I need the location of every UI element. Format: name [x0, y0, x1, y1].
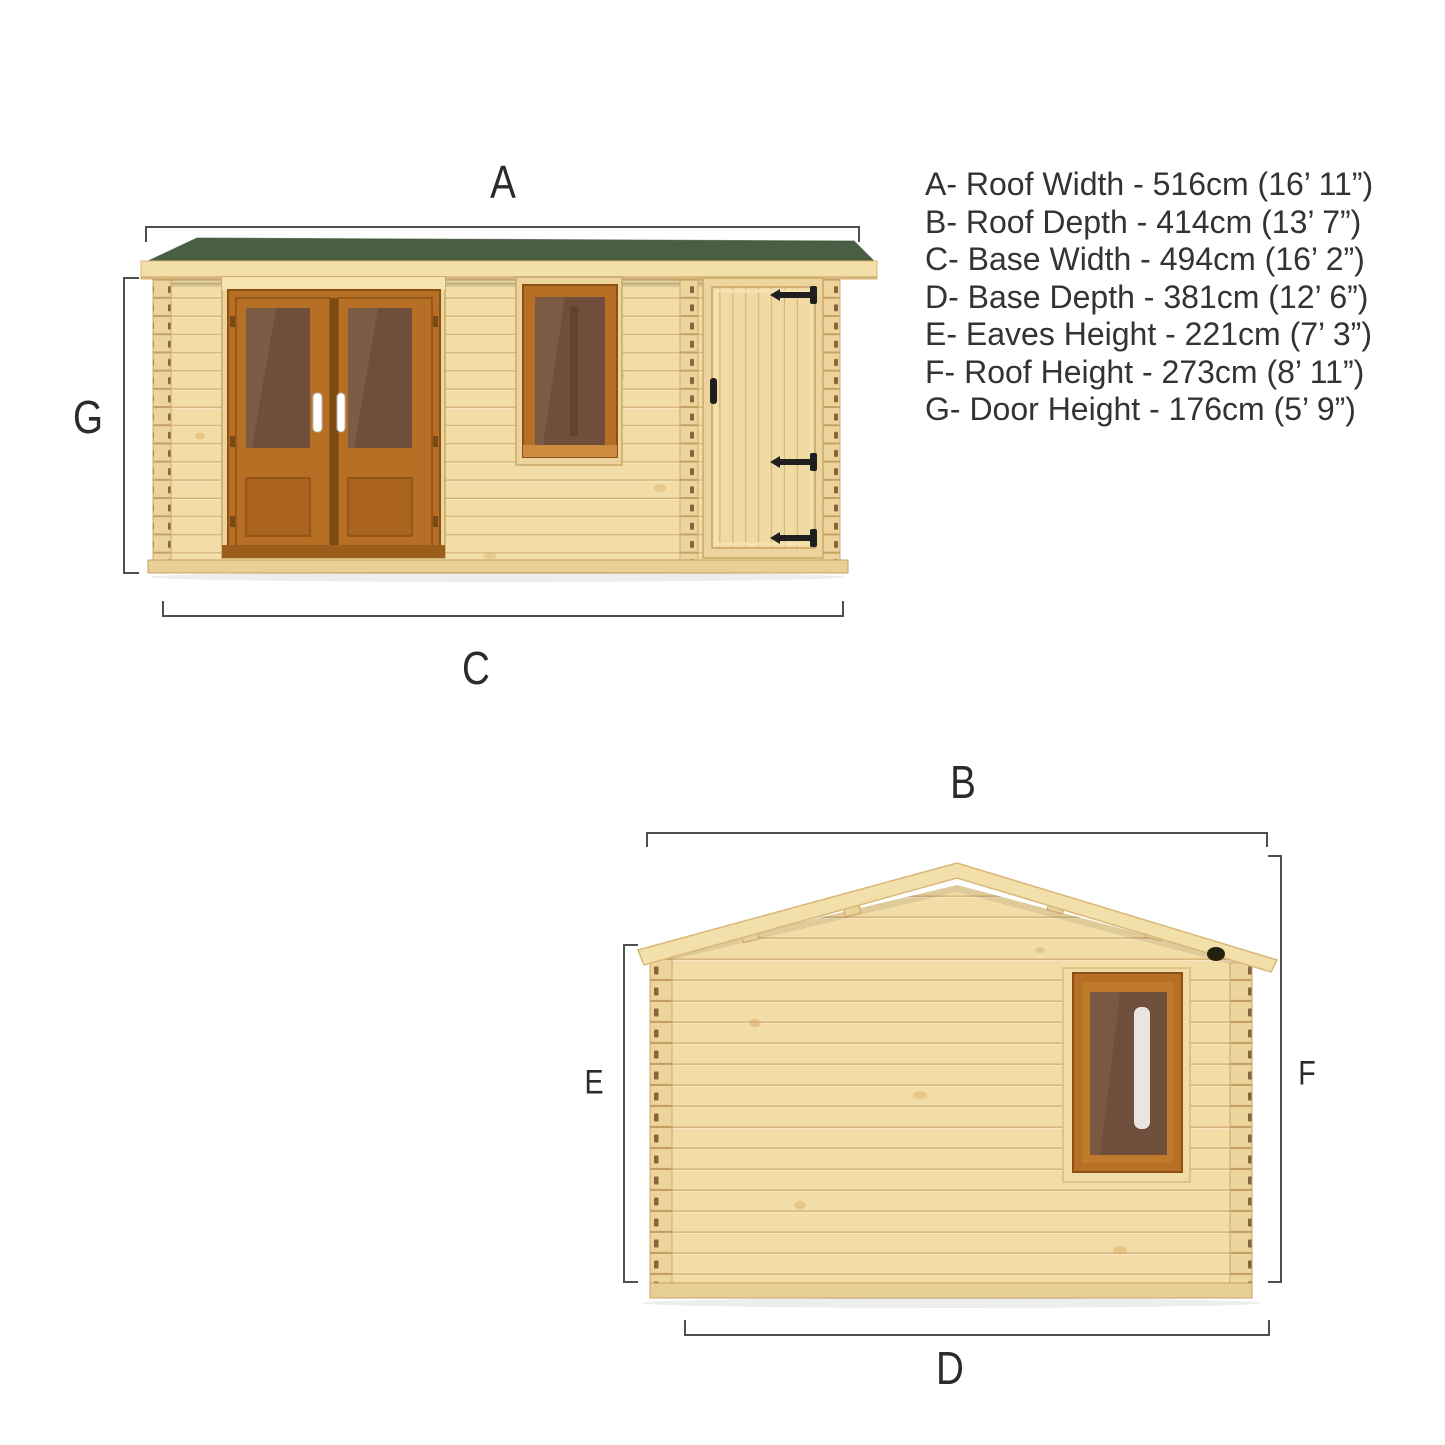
- dim-label-roof-height: F: [1298, 1055, 1315, 1094]
- dim-label-base-depth: D: [936, 1341, 964, 1395]
- dim-label-eaves-height: E: [584, 1064, 603, 1103]
- front-left-corner-logs: [153, 279, 171, 560]
- front-window: [516, 277, 622, 465]
- dim-line-base-depth: [684, 1320, 1270, 1336]
- window-reflection: [1134, 1007, 1150, 1129]
- cabin-dimension-diagram: A- Roof Width - 516cm (16’ 11”) B- Roof …: [0, 0, 1445, 1445]
- dim-line-door-height: [123, 277, 139, 574]
- side-left-corner-logs: [650, 958, 672, 1298]
- side-window: [1063, 968, 1190, 1182]
- dim-label-roof-depth: B: [950, 755, 976, 809]
- shed-door-handle: [710, 378, 717, 404]
- legend-item-base-width: C- Base Width - 494cm (16’ 2”): [925, 241, 1425, 279]
- front-double-door: [222, 277, 445, 558]
- front-base: [148, 560, 848, 573]
- legend-item-eaves-height: E- Eaves Height - 221cm (7’ 3”): [925, 316, 1425, 354]
- front-right-corner-logs: [822, 279, 840, 560]
- dim-line-roof-depth: [646, 832, 1268, 847]
- eave-vent: [1207, 947, 1225, 961]
- front-elevation: [140, 226, 880, 588]
- side-right-corner-logs: [1230, 963, 1252, 1298]
- dimension-legend: A- Roof Width - 516cm (16’ 11”) B- Roof …: [925, 166, 1425, 429]
- dim-label-door-height: G: [73, 390, 103, 444]
- legend-item-base-depth: D- Base Depth - 381cm (12’ 6”): [925, 279, 1425, 317]
- front-partition-logs: [680, 279, 698, 560]
- legend-item-roof-height: F- Roof Height - 273cm (8’ 11”): [925, 354, 1425, 392]
- front-shed-door: [703, 278, 823, 558]
- front-door-handle-right: [337, 393, 345, 432]
- front-elevation-drawing: [140, 226, 880, 588]
- legend-item-roof-width: A- Roof Width - 516cm (16’ 11”): [925, 166, 1425, 204]
- side-elevation-drawing: [620, 855, 1300, 1310]
- side-elevation: [620, 855, 1300, 1310]
- dim-label-roof-width: A: [490, 155, 516, 209]
- side-base: [650, 1283, 1252, 1298]
- dim-line-roof-height: [1268, 855, 1282, 1283]
- legend-item-roof-depth: B- Roof Depth - 414cm (13’ 7”): [925, 204, 1425, 242]
- dim-line-eaves-height: [623, 944, 638, 1283]
- dim-label-base-width: C: [462, 641, 490, 695]
- dim-line-base-width: [162, 601, 844, 617]
- front-door-handle-left: [313, 393, 322, 432]
- dim-line-roof-width: [145, 226, 860, 242]
- legend-item-door-height: G- Door Height - 176cm (5’ 9”): [925, 391, 1425, 429]
